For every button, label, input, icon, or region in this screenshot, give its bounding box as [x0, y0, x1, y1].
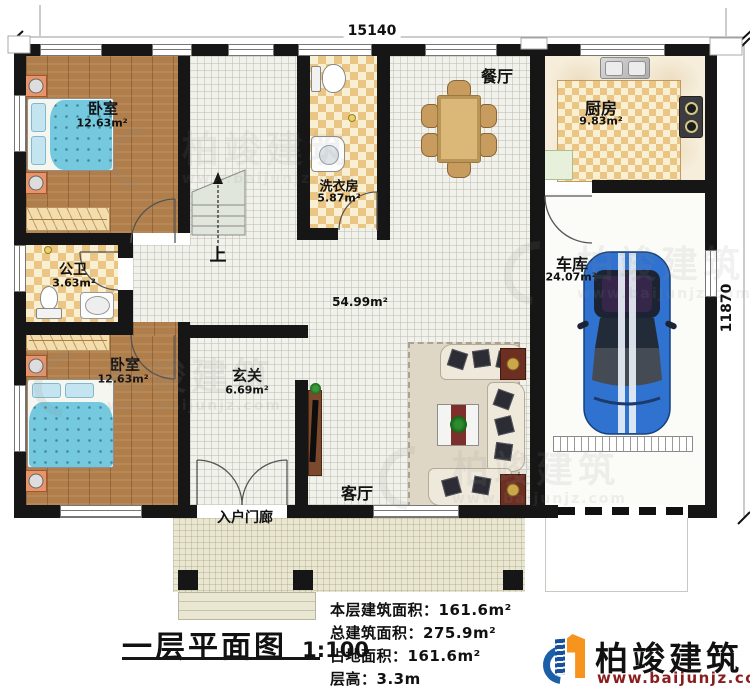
room-area-bedroom2: 12.63m²	[97, 373, 148, 386]
stat-value: 275.9m²	[423, 624, 496, 642]
stat-floor-height: 层高：3.3m	[330, 668, 512, 691]
stair-up-arrow	[213, 172, 223, 184]
stair-up-label: 上	[210, 241, 227, 266]
room-label-hall: 玄关	[232, 365, 262, 386]
stat-floor-area: 本层建筑面积：161.6m²	[330, 599, 512, 622]
open-area-label: 54.99m²	[332, 295, 388, 309]
room-area-garage: 24.07m²	[545, 271, 596, 284]
stat-total-area: 总建筑面积：275.9m²	[330, 622, 512, 645]
brand-logo-icon	[543, 634, 591, 688]
room-label-porch: 入户门廊	[217, 507, 273, 527]
dimension-top: 15140	[344, 23, 401, 39]
room-area-bedroom1: 12.63m²	[76, 117, 127, 130]
floor-plan-canvas: 15140 11870 卧室 12.63m² 公卫 3.63m² 卧室 12.6…	[0, 0, 750, 699]
stat-value: 161.6m²	[439, 601, 512, 619]
dim-bracket	[521, 38, 547, 49]
room-area-bathroom: 3.63m²	[52, 277, 95, 290]
stat-label: 占地面积：	[330, 647, 408, 665]
room-label-living: 客厅	[341, 480, 373, 504]
dim-bracket	[710, 38, 742, 55]
room-label-bedroom1: 卧室	[88, 98, 118, 119]
stat-label: 本层建筑面积：	[330, 601, 439, 619]
stat-label: 总建筑面积：	[330, 624, 423, 642]
stat-value: 3.3m	[377, 670, 421, 688]
title-underline	[122, 657, 320, 660]
stat-footprint-area: 占地面积：161.6m²	[330, 645, 512, 668]
staircase	[192, 170, 245, 243]
room-area-hall: 6.69m²	[225, 384, 268, 397]
logo-tower-blue	[555, 639, 565, 676]
room-area-kitchen: 9.83m²	[579, 115, 622, 128]
entrance-double-door	[197, 460, 287, 505]
brand-website: www.baijunjz.com	[597, 669, 750, 687]
stat-value: 161.6m²	[408, 647, 481, 665]
door-bedroom1	[131, 199, 175, 243]
dim-bracket	[8, 36, 30, 53]
area-stats: 本层建筑面积：161.6m² 总建筑面积：275.9m² 占地面积：161.6m…	[330, 599, 512, 691]
room-label-dining: 餐厅	[481, 63, 513, 87]
brand-logo: 柏竣建筑 www.baijunjz.com	[543, 632, 743, 692]
door-garage-kitchen	[545, 196, 592, 243]
room-area-laundry: 5.87m²	[317, 192, 360, 205]
stat-label: 层高：	[330, 670, 377, 688]
dimension-right: 11870	[719, 281, 735, 336]
room-label-bedroom2: 卧室	[110, 354, 140, 375]
